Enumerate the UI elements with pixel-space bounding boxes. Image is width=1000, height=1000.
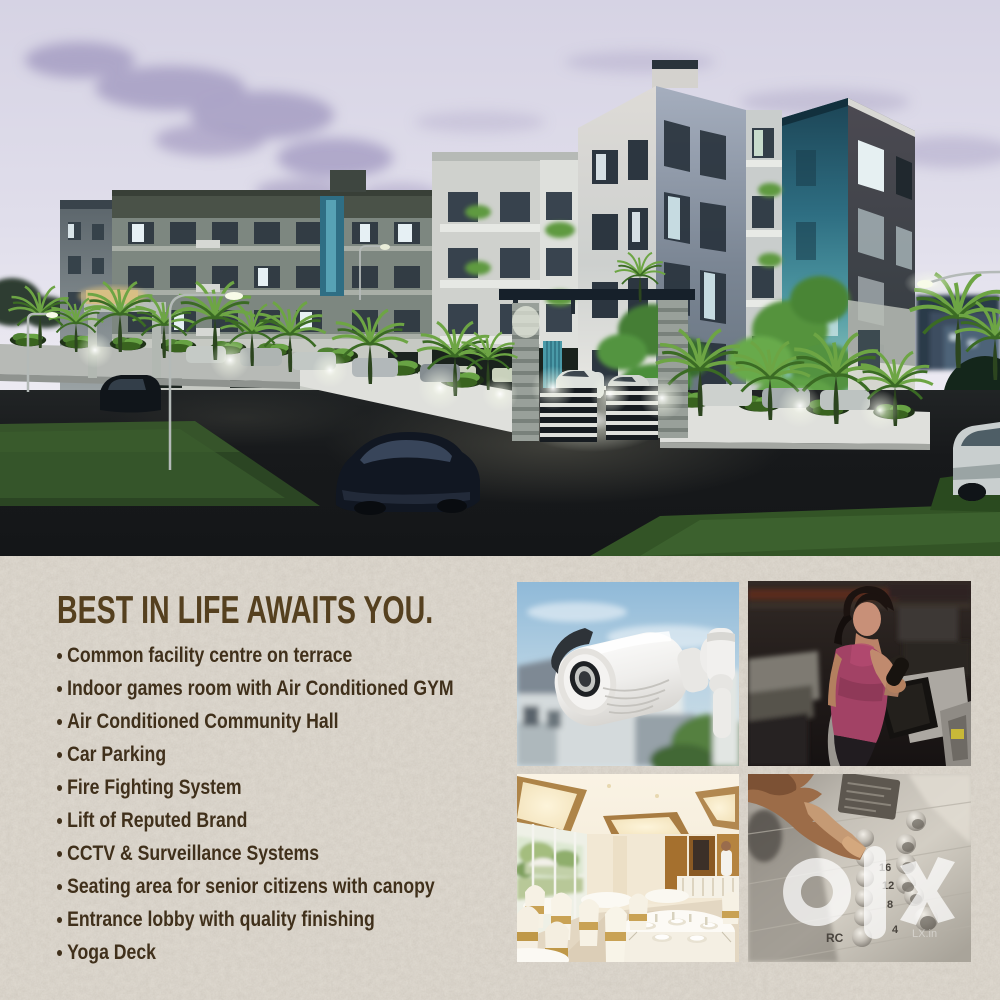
svg-text:4: 4 (892, 924, 899, 936)
svg-text:8: 8 (887, 899, 893, 911)
svg-text:LX.in: LX.in (912, 928, 937, 940)
svg-text:RC: RC (826, 931, 844, 945)
